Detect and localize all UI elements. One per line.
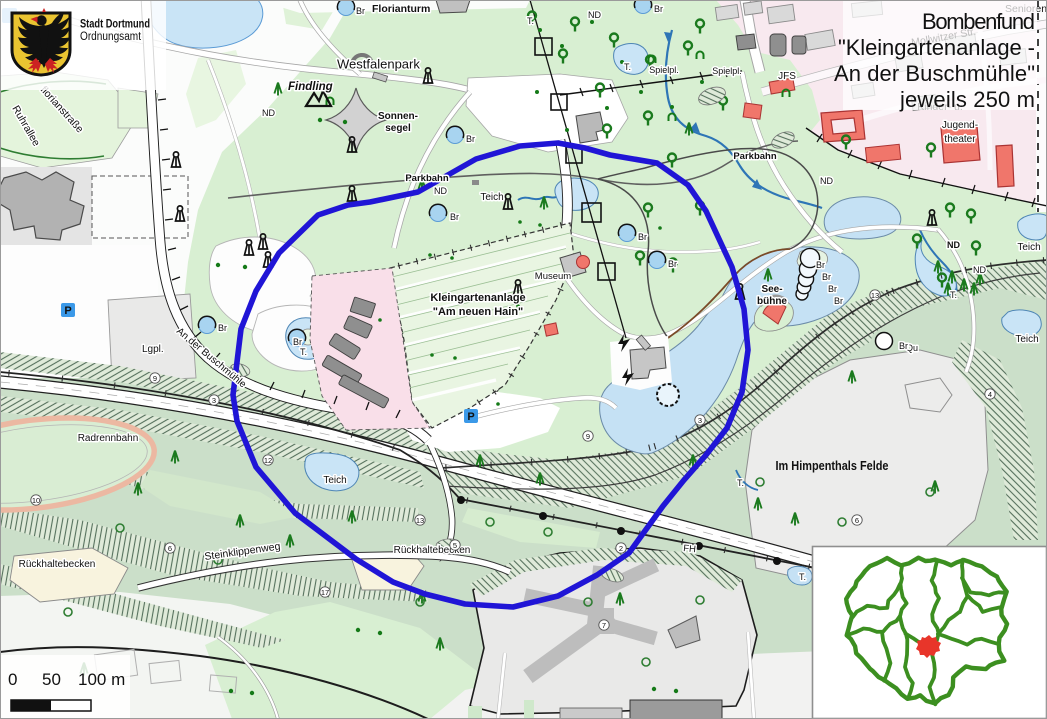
svg-text:Br: Br: [638, 232, 647, 242]
svg-text:Br: Br: [822, 272, 831, 282]
svg-text:12: 12: [264, 456, 272, 465]
svg-text:13: 13: [416, 516, 424, 525]
svg-text:theater: theater: [944, 134, 976, 145]
svg-text:17: 17: [321, 588, 329, 597]
svg-text:Br: Br: [834, 296, 843, 306]
svg-text:An der Buschmühle": An der Buschmühle": [834, 61, 1035, 86]
svg-text:bühne: bühne: [757, 296, 787, 307]
svg-text:FH: FH: [683, 543, 697, 555]
svg-text:"Am neuen Hain": "Am neuen Hain": [433, 306, 524, 318]
svg-text:Radrennbahn: Radrennbahn: [78, 433, 139, 444]
svg-text:Parkbahn: Parkbahn: [405, 173, 448, 184]
svg-text:ND: ND: [820, 176, 833, 186]
svg-text:Westfalenpark: Westfalenpark: [337, 57, 420, 72]
svg-text:10: 10: [32, 496, 40, 505]
svg-text:See-: See-: [761, 284, 782, 295]
svg-text:Br: Br: [293, 337, 302, 347]
svg-text:4: 4: [988, 390, 992, 399]
svg-text:P: P: [64, 305, 71, 317]
svg-text:ND: ND: [262, 108, 275, 118]
svg-text:0: 0: [8, 670, 17, 689]
svg-text:T.: T.: [950, 290, 957, 300]
svg-text:JFS: JFS: [778, 71, 796, 82]
svg-text:9: 9: [153, 374, 157, 383]
svg-text:Br: Br: [466, 134, 475, 144]
svg-text:50: 50: [42, 670, 61, 689]
svg-text:7: 7: [602, 621, 606, 630]
svg-text:Findling: Findling: [288, 81, 333, 93]
svg-text:T.: T.: [799, 572, 806, 582]
svg-text:ND: ND: [588, 10, 601, 20]
svg-text:T.: T.: [624, 62, 631, 72]
svg-text:9: 9: [586, 432, 590, 441]
svg-text:5: 5: [453, 541, 457, 550]
svg-text:ND: ND: [947, 240, 960, 250]
svg-text:Br: Br: [828, 284, 837, 294]
svg-text:Br: Br: [218, 323, 227, 333]
svg-text:Kleingartenanlage: Kleingartenanlage: [430, 292, 525, 304]
svg-text:T.: T.: [737, 478, 744, 488]
svg-text:13: 13: [871, 291, 879, 300]
svg-text:ND: ND: [434, 186, 447, 196]
svg-text:Stadt Dortmund: Stadt Dortmund: [80, 19, 150, 31]
svg-text:Bombenfund: Bombenfund: [922, 9, 1035, 34]
svg-text:6: 6: [855, 516, 859, 525]
svg-text:"Kleingartenanlage -: "Kleingartenanlage -: [838, 35, 1035, 60]
svg-text:T.: T.: [527, 16, 534, 26]
svg-text:Teich: Teich: [323, 475, 346, 486]
svg-text:jeweils 250 m: jeweils 250 m: [899, 87, 1035, 112]
svg-text:Br: Br: [816, 260, 825, 270]
svg-text:Br: Br: [654, 4, 663, 14]
svg-text:3: 3: [212, 396, 216, 405]
svg-text:Lgpl.: Lgpl.: [142, 344, 164, 355]
svg-text:Ordnungsamt: Ordnungsamt: [80, 31, 142, 43]
svg-text:2: 2: [619, 544, 623, 553]
svg-text:Br: Br: [356, 6, 365, 16]
svg-text:Museum: Museum: [535, 271, 572, 282]
svg-text:Br: Br: [668, 259, 677, 269]
svg-text:T.: T.: [300, 347, 307, 357]
svg-text:Rückhaltebecken: Rückhaltebecken: [19, 559, 96, 570]
svg-text:Spielpl.: Spielpl.: [649, 65, 679, 75]
svg-text:Florianturm: Florianturm: [372, 3, 430, 15]
svg-text:P: P: [467, 411, 474, 423]
svg-text:Teich: Teich: [480, 192, 503, 203]
svg-text:Teich: Teich: [1017, 242, 1040, 253]
svg-text:Br: Br: [450, 212, 459, 222]
svg-text:Jugend-: Jugend-: [942, 120, 978, 131]
svg-text:Parkbahn: Parkbahn: [733, 151, 776, 162]
svg-text:Sonnen-: Sonnen-: [378, 111, 418, 122]
svg-text:ND: ND: [973, 265, 986, 275]
svg-text:6: 6: [168, 544, 172, 553]
svg-text:segel: segel: [385, 123, 411, 134]
svg-text:Br: Br: [899, 341, 908, 351]
svg-text:Teich: Teich: [1015, 334, 1038, 345]
svg-text:100 m: 100 m: [78, 670, 125, 689]
svg-text:Im Himpenthals Felde: Im Himpenthals Felde: [776, 459, 889, 473]
svg-text:Spielpl.: Spielpl.: [712, 66, 742, 76]
svg-text:3: 3: [698, 416, 702, 425]
